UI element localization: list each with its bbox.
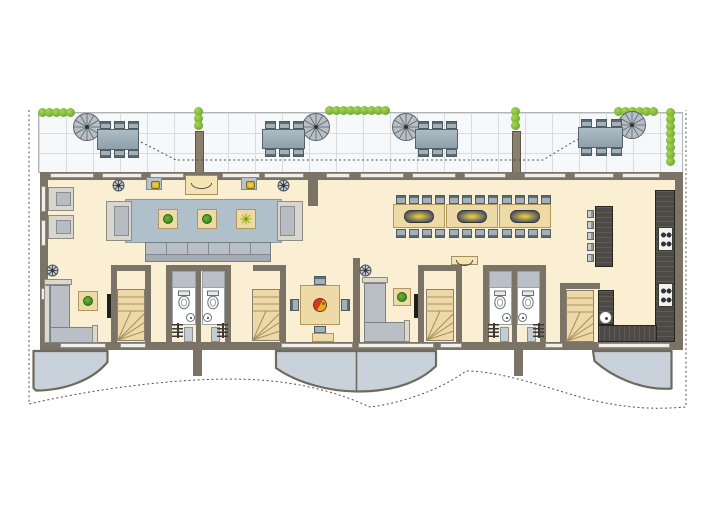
shower [517, 271, 540, 288]
corner-sofa [50, 327, 94, 343]
window [622, 173, 660, 178]
window [464, 173, 506, 178]
bench [312, 333, 334, 342]
door-leaf [184, 327, 193, 342]
ceiling-spot-icon [359, 264, 372, 277]
cooktop-icon [658, 227, 673, 251]
corner-sofa [364, 283, 386, 325]
wall-interior [280, 265, 286, 350]
ceiling-spot-icon [112, 179, 125, 192]
wall-interior [456, 265, 462, 343]
wall-lamp-icon [241, 177, 257, 190]
cooktop-icon [658, 283, 673, 307]
ceiling-spot-icon [277, 179, 290, 192]
wall-lamp-icon [146, 177, 162, 190]
hand-basin-icon [502, 313, 511, 322]
terrace-table [262, 129, 305, 149]
planter-bushes [194, 109, 203, 130]
corner-sofa [364, 322, 406, 342]
wall-interior [253, 265, 286, 271]
wall-console [451, 256, 478, 265]
wall-interior [196, 265, 201, 343]
wall-interior [418, 265, 462, 271]
hedge-right-edge [666, 110, 675, 166]
hand-basin-icon [518, 313, 527, 322]
staircase [426, 289, 454, 341]
tv [107, 294, 111, 318]
wall-stub [514, 350, 523, 376]
kitchen-counter [655, 190, 675, 342]
bar-counter [595, 206, 613, 267]
terrace-table [578, 127, 623, 148]
plant-icon [397, 292, 407, 302]
wall-stub [308, 180, 318, 206]
staircase [117, 289, 145, 341]
window [360, 173, 404, 178]
wall-east [675, 180, 683, 350]
wall-interior [418, 265, 424, 350]
radiator-icon [488, 324, 499, 337]
window [326, 173, 350, 178]
shower [489, 271, 512, 288]
pendant-lamp-icon [510, 210, 540, 223]
kitchen-counter [598, 325, 657, 342]
terrace-planter [195, 131, 204, 176]
shower [202, 271, 225, 288]
long-sofa [145, 242, 271, 262]
toilet-icon [520, 290, 536, 310]
toilet-icon [492, 290, 508, 310]
radiator-icon [533, 324, 544, 337]
armchair [106, 201, 132, 241]
balcony-door [358, 343, 434, 348]
balcony [593, 351, 672, 389]
radiator-icon [172, 324, 183, 337]
hand-basin-icon [203, 313, 212, 322]
door-leaf [500, 327, 509, 342]
armchair [48, 187, 74, 211]
pendant-lamp-icon [457, 210, 487, 223]
balcony-door [60, 343, 106, 348]
balcony-door [598, 343, 670, 348]
fruit-bowl-icon [313, 298, 327, 312]
radiator-icon [217, 324, 228, 337]
window [41, 220, 46, 246]
toilet-icon [176, 290, 192, 310]
tv [414, 294, 418, 318]
spiral-staircase [301, 112, 331, 142]
hedge [327, 106, 390, 115]
corner-sofa [50, 285, 70, 329]
window [41, 186, 46, 212]
sink-icon [599, 311, 612, 324]
planter-bushes [511, 109, 520, 130]
wall-interior [560, 283, 600, 289]
terrace-planter [512, 131, 521, 176]
plant-icon [240, 213, 252, 225]
wall-stub [193, 350, 202, 376]
plant-icon [83, 296, 93, 306]
sofa-arm [92, 325, 98, 343]
pendant-lamp-icon [404, 210, 434, 223]
terrace-table [415, 129, 458, 149]
window [264, 173, 304, 178]
terrace-table [97, 129, 139, 150]
wall-interior [111, 265, 150, 271]
hand-basin-icon [186, 313, 195, 322]
window [50, 173, 94, 178]
floor-plan [0, 0, 713, 519]
plant-icon [202, 214, 212, 224]
staircase [252, 289, 280, 341]
staircase [566, 290, 594, 342]
balcony [276, 351, 436, 392]
window [120, 343, 146, 348]
window [524, 173, 566, 178]
plant-icon [163, 214, 173, 224]
window [574, 173, 614, 178]
hedge [40, 108, 75, 117]
toilet-icon [205, 290, 221, 310]
wall-interior [145, 265, 151, 343]
window [412, 173, 456, 178]
armchair [277, 201, 303, 241]
sideboard [185, 175, 218, 195]
window [545, 343, 563, 348]
shower [172, 271, 196, 288]
balcony-door [281, 343, 353, 348]
ceiling-spot-icon [46, 264, 59, 277]
window [102, 173, 142, 178]
window [440, 343, 462, 348]
balcony [34, 351, 108, 391]
sofa-arm [404, 320, 410, 342]
armchair [48, 215, 74, 239]
